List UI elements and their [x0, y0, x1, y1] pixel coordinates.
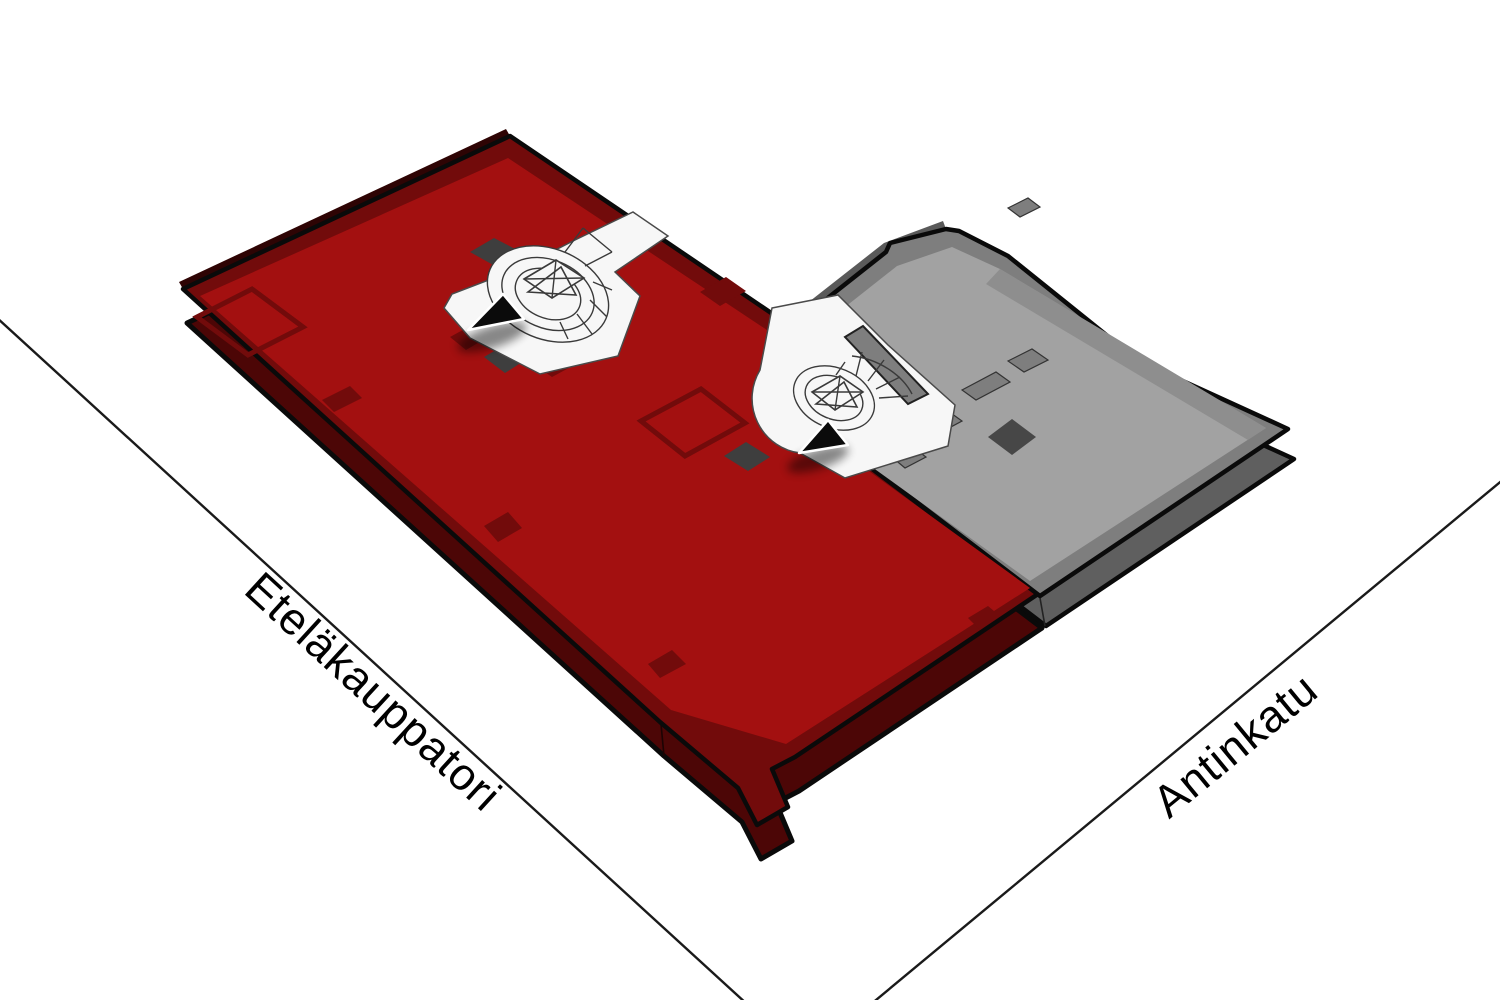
street-label-etelakauppatori: Eteläkauppatori — [235, 562, 511, 821]
street-label-antinkatu: Antinkatu — [1143, 663, 1327, 827]
wall-stub — [1008, 198, 1040, 217]
floorplan-canvas: Eteläkauppatori Antinkatu — [0, 0, 1500, 1000]
floorplan-svg: Eteläkauppatori Antinkatu — [0, 0, 1500, 1000]
